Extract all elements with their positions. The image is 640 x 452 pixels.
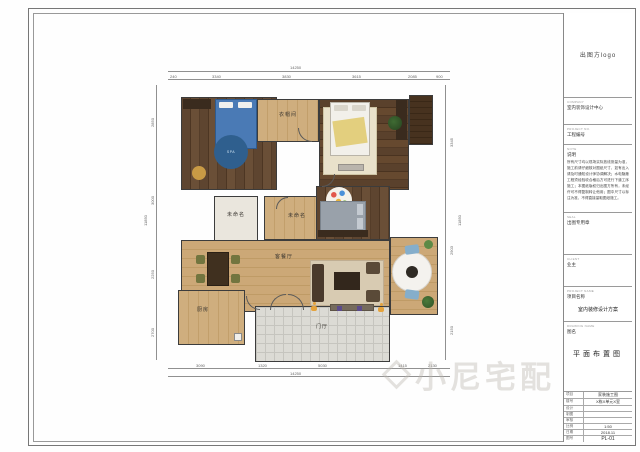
dim-line-left	[156, 85, 157, 360]
room-entry-hall	[255, 306, 390, 362]
title-block-logo-cell: 出图方logo	[564, 13, 632, 98]
dim-right-total: 11850	[457, 215, 462, 226]
project-name-label: 项目名称	[567, 294, 629, 300]
master-bed	[330, 102, 370, 156]
info-row: 图号 PL-01	[564, 435, 632, 442]
dining-chair	[196, 274, 205, 283]
person-figure	[378, 303, 384, 312]
drawing-name-caps-label: DRAWING NAME	[567, 324, 629, 328]
room-cabinet-nook	[409, 95, 433, 145]
seal-caps-label: SEAL	[567, 215, 629, 219]
room-label-entry: 门厅	[302, 323, 342, 330]
drawing-sheet: SPA 衣帽间 未命名	[0, 0, 640, 452]
company-name: 室内装饰设计中心	[567, 105, 629, 111]
dining-chair	[231, 274, 240, 283]
dining-table	[207, 252, 229, 286]
armchair	[366, 290, 380, 302]
note-caps-label: NOTE	[567, 147, 629, 151]
dim-bottom-seg: 3090	[196, 363, 205, 368]
title-block-project-no: PROJECT NO. 工程编号	[564, 125, 632, 145]
person-figure	[311, 302, 317, 311]
dim-line-bottom-total	[168, 376, 450, 377]
drawing-number: PL-01	[584, 436, 632, 442]
dim-bottom-seg: 1415	[398, 363, 407, 368]
dim-left-seg: 2250	[150, 270, 155, 279]
room-label-living: 客餐厅	[264, 253, 304, 260]
room-label-unnamed2: 未命名	[277, 212, 317, 219]
title-block-notes: NOTE 说明 所有尺寸均以现场实际放线测量为准，施工前请仔细核对图纸尺寸，如有…	[564, 145, 632, 213]
rug-text: SPA	[227, 150, 235, 154]
room-label-kitchen: 厨房	[183, 306, 223, 313]
dining-chair	[231, 255, 240, 264]
info-label: 图号	[564, 436, 584, 442]
dim-bottom-seg: 5030	[318, 363, 327, 368]
title-block-drawing-name: DRAWING NAME 图名 平面布置图	[564, 322, 632, 392]
dim-right-seg: 2903	[449, 246, 454, 255]
balcony-chair	[404, 289, 419, 300]
gray-bed	[320, 201, 366, 231]
bedroom2-wardrobe	[318, 230, 368, 237]
dim-left-total: 11850	[143, 215, 148, 226]
dim-left-seg: 2700	[150, 328, 155, 337]
small-plant	[424, 240, 433, 249]
dim-line-bottom-segments	[168, 368, 450, 369]
balcony-chair	[404, 244, 419, 255]
dim-top-seg: 240	[170, 74, 177, 79]
dining-chair	[196, 255, 205, 264]
round-rug: SPA	[214, 135, 248, 169]
note-body: 所有尺寸均以现场实际放线测量为准，施工前请仔细核对图纸尺寸，如有出入请及时通知设…	[567, 160, 629, 201]
project-no-caps-label: PROJECT NO.	[567, 127, 629, 131]
title-block-project-name: PROJECT NAME 项目名称 室内装修设计方案	[564, 287, 632, 323]
client-label: 业主	[567, 262, 629, 268]
note-label: 说明	[567, 152, 629, 158]
armchair	[366, 262, 380, 274]
dim-line-top-total	[168, 71, 450, 72]
drawing-title: 平面布置图	[567, 349, 629, 359]
plant	[388, 116, 402, 130]
company-logo: 出图方logo	[580, 50, 616, 59]
dim-line-top-segments	[168, 79, 450, 80]
company-caps-label: COMPANY	[567, 100, 629, 104]
project-name-value: 室内装修设计方案	[567, 306, 629, 313]
client-caps-label: CLIENT	[567, 257, 629, 261]
info-row: 楼号 X栋X单元X室	[564, 398, 632, 405]
ottoman	[192, 166, 206, 180]
dim-right-seg: 3345	[449, 138, 454, 147]
dim-bottom-seg: 2130	[428, 363, 437, 368]
room-label-unnamed1: 未命名	[216, 211, 256, 218]
project-name-caps-label: PROJECT NAME	[567, 289, 629, 293]
dim-top-seg: 3340	[212, 74, 221, 79]
dim-left-seg: 3000	[150, 196, 155, 205]
balcony-plant	[422, 296, 434, 308]
title-block-seal: SEAL 出图专用章	[564, 213, 632, 255]
dim-bottom-total: 14250	[290, 371, 301, 376]
dim-line-right	[445, 85, 446, 360]
coffee-table	[334, 272, 360, 290]
dim-top-seg: 3830	[282, 74, 291, 79]
dim-top-seg: 900	[436, 74, 443, 79]
dim-right-seg: 2150	[449, 326, 454, 335]
room-unnamed-1	[214, 196, 258, 244]
dim-top-seg: 2085	[408, 74, 417, 79]
sofa	[312, 264, 324, 302]
dim-bottom-seg: 1320	[258, 363, 267, 368]
kitchen-sink	[234, 333, 242, 341]
title-block-info-table: 项目 家装施工图 楼号 X栋X单元X室 设计 制图 审核 比例 1:50	[564, 392, 632, 442]
drawing-name-label: 图名	[567, 329, 629, 335]
bed-bench	[338, 164, 364, 171]
title-block-company: COMPANY 室内装饰设计中心	[564, 98, 632, 126]
dim-left-seg: 2850	[150, 118, 155, 127]
title-block: 出图方logo COMPANY 室内装饰设计中心 PROJECT NO. 工程编…	[563, 13, 632, 442]
project-no-label: 工程编号	[567, 132, 629, 138]
tv-cabinet	[330, 304, 374, 311]
dim-top-seg: 3615	[352, 74, 361, 79]
seal-label: 出图专用章	[567, 220, 629, 226]
title-block-client: CLIENT 业主	[564, 255, 632, 287]
balcony-table	[406, 266, 418, 278]
room-label-closet: 衣帽间	[268, 111, 308, 118]
dim-top-total: 14250	[290, 65, 301, 70]
wardrobe	[183, 99, 211, 109]
